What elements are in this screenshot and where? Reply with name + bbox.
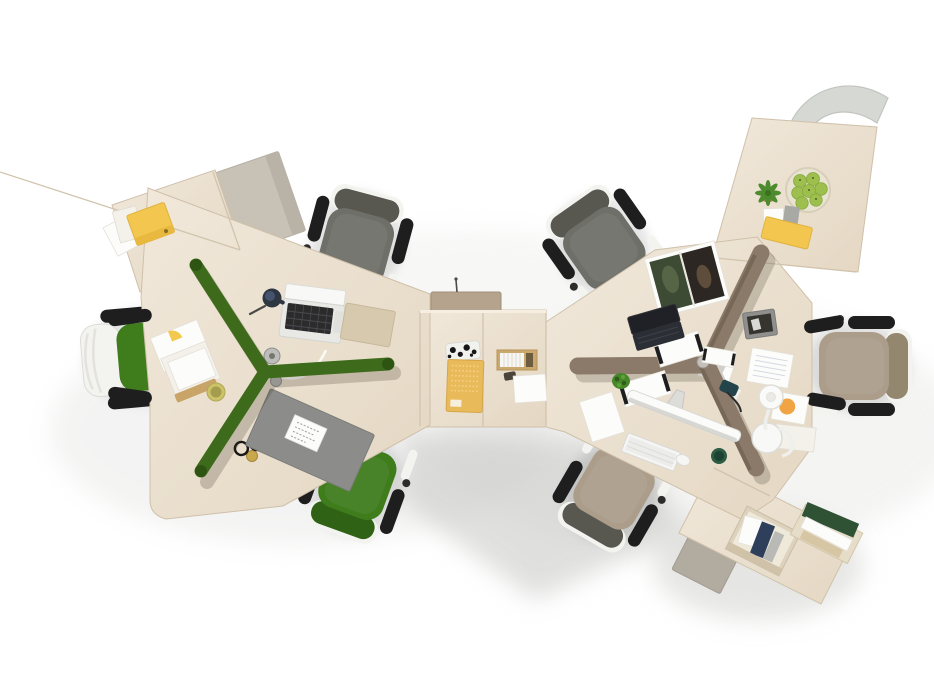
patterned-pouch xyxy=(445,340,481,361)
yellow-notebook xyxy=(446,359,484,412)
green-cup xyxy=(711,448,727,464)
taupe-divider-arm xyxy=(578,365,707,366)
white-notepad-center xyxy=(513,374,547,403)
apple-bowl xyxy=(786,168,830,212)
office-scene-svg xyxy=(0,0,934,700)
olive-cup xyxy=(207,383,225,401)
ruled-paper xyxy=(746,348,793,389)
small-plant xyxy=(612,373,630,389)
module-edge-highlight xyxy=(420,310,546,313)
photo-frame xyxy=(742,309,777,339)
green-divider-arm xyxy=(265,364,388,372)
wooden-card-box xyxy=(497,350,537,370)
succulent-plant xyxy=(755,180,781,206)
office-desk-photo xyxy=(0,0,934,700)
silver-laptop xyxy=(279,283,347,343)
